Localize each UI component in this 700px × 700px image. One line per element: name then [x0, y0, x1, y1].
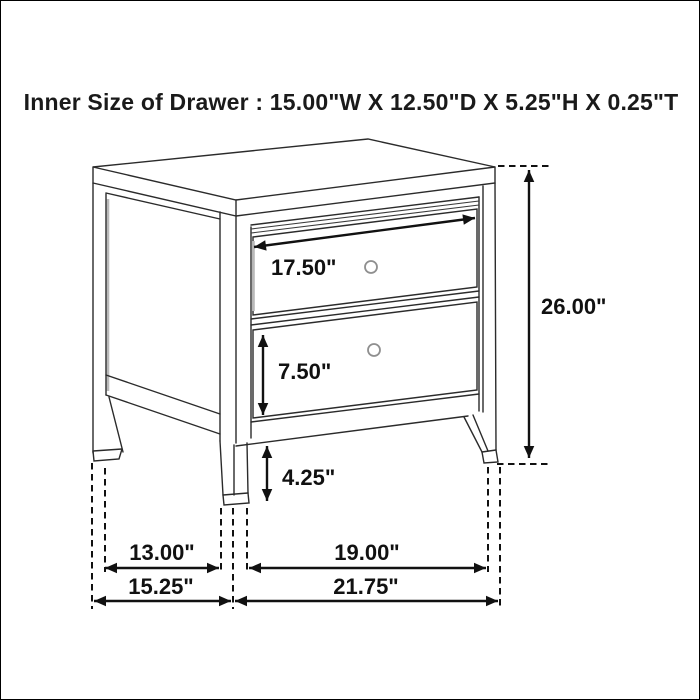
dim-label-26-00: 26.00" — [541, 294, 606, 319]
dim-label-19-00: 19.00" — [334, 540, 399, 565]
front-left-leg-right-edge — [247, 443, 248, 493]
dim-overall-depth: 15.25" — [94, 574, 231, 601]
front-left-leg — [220, 212, 249, 505]
dim-label-21-75: 21.75" — [333, 574, 398, 599]
front-left-leg-left-edge — [220, 441, 223, 495]
front-right-leg-left-edge — [464, 417, 482, 452]
side-bottom-rail-bottom — [106, 395, 220, 434]
dim-label-7-50: 7.50" — [278, 359, 331, 384]
dim-drawer-face-width: 17.50" — [254, 218, 475, 280]
dim-overall-height: 26.00" — [497, 166, 606, 464]
carcass-bottom-edge — [236, 416, 468, 446]
back-left-leg — [93, 397, 123, 461]
nightstand-drawing — [93, 139, 498, 505]
dim-label-13-00: 13.00" — [129, 540, 194, 565]
page-title: Inner Size of Drawer : 15.00"W X 12.50"D… — [24, 89, 679, 115]
back-left-leg-ankle — [93, 449, 122, 451]
top-reveal-line-2 — [251, 201, 479, 229]
nightstand-dimension-diagram: Inner Size of Drawer : 15.00"W X 12.50"D… — [1, 1, 700, 700]
divider-rail-top — [251, 291, 479, 319]
dim-depth-between-legs: 13.00" — [105, 540, 219, 568]
front-right-leg-corner-edge — [473, 415, 488, 451]
dim-label-17-50: 17.50" — [271, 255, 336, 280]
tabletop-front-band — [236, 167, 495, 216]
dim-label-4-25: 4.25" — [282, 465, 335, 490]
front-right-outer-edge — [495, 183, 496, 450]
diagram-page: Inner Size of Drawer : 15.00"W X 12.50"D… — [0, 0, 700, 700]
front-right-leg — [464, 183, 498, 463]
dim-label-15-25: 15.25" — [128, 574, 193, 599]
dim-leg-height: 4.25" — [267, 446, 335, 501]
dim-bottom-drawer-height: 7.50" — [263, 335, 331, 415]
left-side-panel — [93, 183, 220, 453]
dimension-annotations: 17.50" 26.00" 7.50" 4.25" — [92, 166, 606, 609]
dim-width-between-legs: 19.00" — [249, 540, 486, 568]
bottom-drawer-knob — [368, 344, 380, 356]
side-panel-top-edge — [106, 193, 220, 219]
back-left-leg-inner-edge — [109, 397, 123, 452]
bottom-rail-top — [251, 394, 479, 422]
front-right-leg-ankle — [482, 450, 496, 452]
dim-overall-width: 21.75" — [235, 574, 498, 601]
side-bottom-rail-top — [106, 375, 220, 414]
tabletop-left-band — [93, 167, 236, 216]
front-left-leg-ankle — [223, 493, 248, 495]
top-drawer-knob — [365, 261, 377, 273]
